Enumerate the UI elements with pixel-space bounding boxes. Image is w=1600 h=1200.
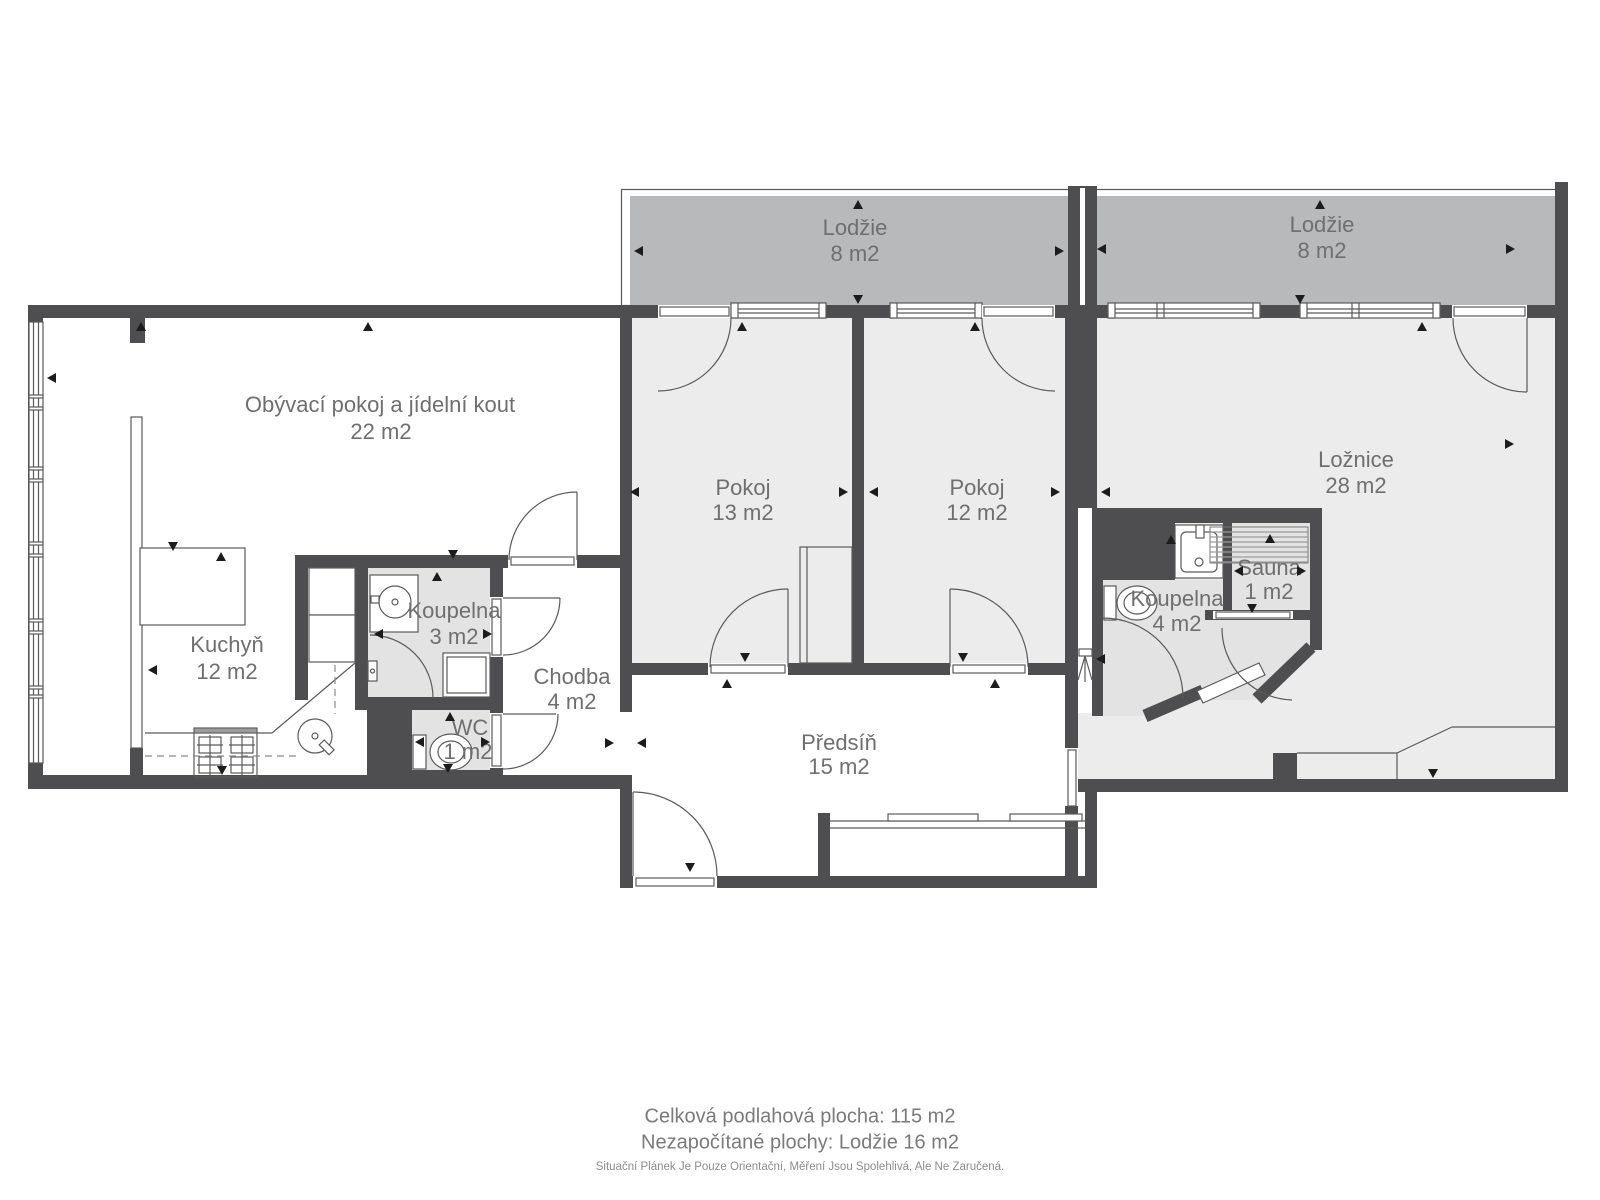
- label-room2-name: Pokoj: [949, 475, 1004, 500]
- balcony-door-bedroom: [1454, 307, 1525, 316]
- footer-excluded-area: Nezapočítané plochy: Lodžie 16 m2: [641, 1131, 959, 1153]
- label-sauna-area: 1 m2: [1245, 579, 1294, 604]
- balcony-door-room1: [660, 307, 729, 316]
- window-bedroom-1: [1108, 303, 1260, 318]
- towel-rail: [368, 661, 377, 681]
- label-sauna-name: Sauna: [1237, 555, 1301, 580]
- label-loggia-left-area: 8 m2: [831, 241, 880, 266]
- sauna-door-sill: [1216, 612, 1290, 618]
- dimension-arrow-up: [990, 679, 1000, 688]
- sink-tap: [1196, 525, 1204, 538]
- dimension-arrow-down: [217, 766, 227, 775]
- dimension-arrow-down: [685, 863, 695, 872]
- label-bathroom-big-area: 4 m2: [1153, 611, 1202, 636]
- label-bathroom-small-name: Koupelna: [408, 598, 502, 623]
- wardrobe-room1: [800, 547, 852, 663]
- toilet-tank-2: [1104, 586, 1116, 620]
- footer: Celková podlahová plocha: 115 m2 Nezapoč…: [596, 1105, 1004, 1173]
- label-wc-name: WC: [452, 715, 489, 740]
- label-loggia-right-name: Lodžie: [1290, 212, 1355, 237]
- dimension-arrow-left: [148, 665, 157, 675]
- entry-bedroom-door-leaf: [1068, 750, 1076, 806]
- label-kitchen-area: 12 m2: [196, 659, 257, 684]
- room-fills: [368, 318, 1555, 779]
- kitchen-fixtures: [131, 417, 355, 777]
- window-room2: [890, 303, 982, 318]
- label-entry-name: Předsíň: [801, 730, 877, 755]
- label-entry-area: 15 m2: [808, 754, 869, 779]
- entry-closet: [818, 813, 1085, 876]
- label-loggia-right-area: 8 m2: [1298, 238, 1347, 263]
- footer-total-area: Celková podlahová plocha: 115 m2: [645, 1105, 956, 1127]
- label-bathroom-big-name: Koupelna: [1131, 586, 1225, 611]
- kitchen-counter-2: [309, 615, 355, 662]
- footer-disclaimer: Situační Plánek Je Pouze Orientační, Měř…: [596, 1161, 1004, 1173]
- kitchen-sink-tap: [319, 740, 334, 755]
- bedroom-floor-strip: [1078, 713, 1092, 779]
- floor-plan-drawing: Obývací pokoj a jídelní kout 22 m2 Kuchy…: [0, 0, 1600, 1200]
- label-bedroom-area: 28 m2: [1325, 473, 1386, 498]
- kitchen-counter-1: [309, 568, 355, 615]
- dimension-arrow-up: [363, 322, 373, 331]
- entrance-door-sill: [636, 878, 714, 886]
- label-room1-area: 13 m2: [712, 500, 773, 525]
- label-hallway-name: Chodba: [533, 664, 611, 689]
- label-hallway-area: 4 m2: [548, 689, 597, 714]
- dimension-arrow-left: [637, 738, 646, 748]
- label-living-area: 22 m2: [350, 419, 411, 444]
- floor-plan-page: Obývací pokoj a jídelní kout 22 m2 Kuchy…: [0, 0, 1600, 1200]
- label-kitchen-name: Kuchyň: [190, 632, 263, 657]
- dining-table: [140, 548, 245, 625]
- dimension-arrow-up: [722, 679, 732, 688]
- label-loggia-left-name: Lodžie: [823, 215, 888, 240]
- stove: [194, 728, 257, 777]
- label-bedroom-name: Ložnice: [1318, 447, 1394, 472]
- label-bathroom-small-area: 3 m2: [430, 624, 479, 649]
- label-room2-area: 12 m2: [946, 500, 1007, 525]
- shower-tray: [443, 653, 490, 697]
- label-room1-name: Pokoj: [715, 475, 770, 500]
- window-bedroom-2: [1300, 303, 1440, 318]
- dimension-arrow-right: [605, 738, 614, 748]
- dimension-arrow-left: [47, 373, 56, 383]
- window-living-left: [29, 322, 43, 763]
- label-living-name: Obývací pokoj a jídelní kout: [245, 392, 515, 417]
- balcony-door-room2: [984, 307, 1053, 316]
- window-room1: [731, 303, 826, 318]
